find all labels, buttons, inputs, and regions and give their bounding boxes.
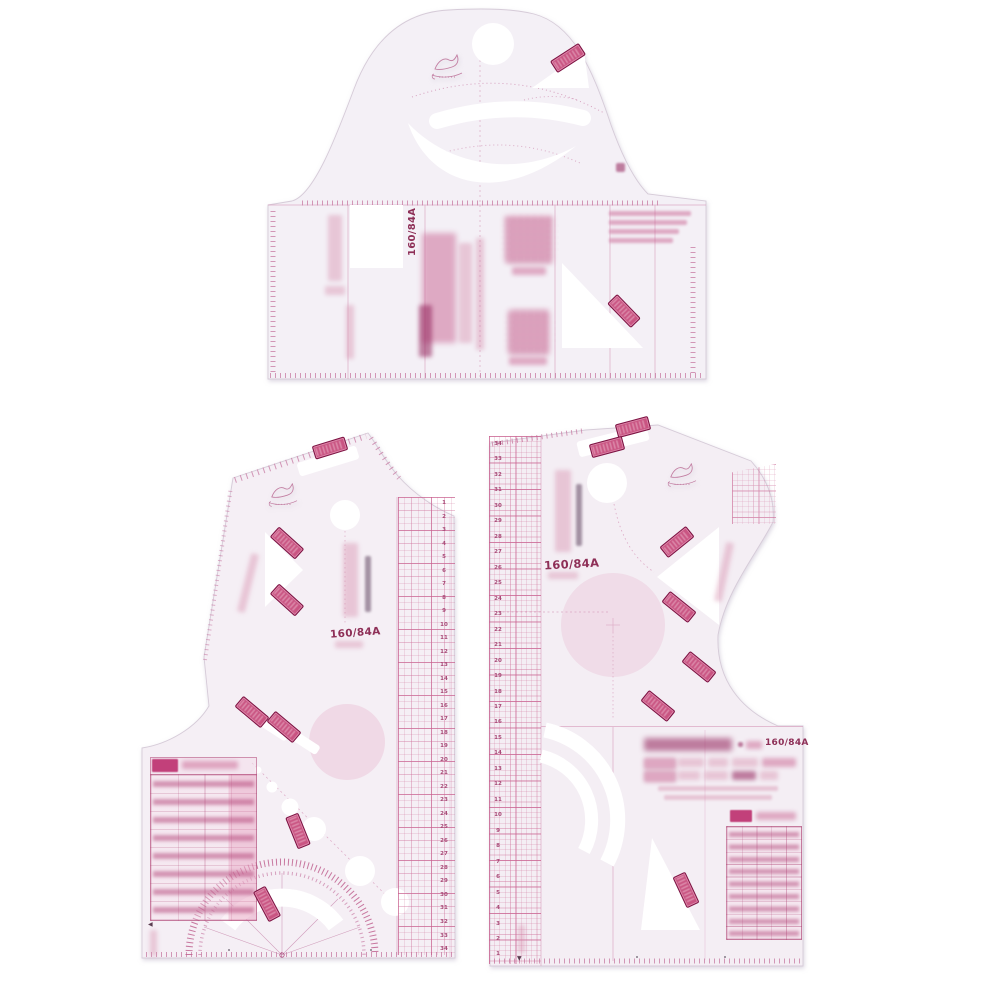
rect-cutout	[350, 205, 403, 268]
ruler-number: 1	[492, 952, 504, 958]
ruler-number: 20	[492, 659, 504, 665]
ruler-number: 33	[492, 457, 504, 463]
ruler-number: 18	[492, 690, 504, 696]
blurred-corner-label	[518, 925, 525, 953]
ruler-number: 13	[437, 663, 451, 669]
ruler-number: 30	[492, 504, 504, 510]
blurred-text	[459, 243, 472, 343]
ruler-number: 8	[437, 596, 451, 602]
blurred-caption	[335, 641, 363, 648]
ruler-number: 22	[437, 785, 451, 791]
ruler-number: 2	[437, 515, 451, 521]
ruler-number: 26	[437, 839, 451, 845]
ruler-number: 3	[437, 528, 451, 534]
ruler-body	[268, 9, 706, 379]
button-hole	[267, 782, 278, 793]
registration-dot	[636, 956, 638, 958]
ruler-number: 10	[492, 813, 504, 819]
ruler-number: 25	[492, 581, 504, 587]
template-yoke-ruler: 160/84A	[262, 5, 708, 383]
size-label-vertical: 160/84A	[407, 210, 418, 256]
ruler-number: 23	[492, 612, 504, 618]
ruler-number: 16	[492, 720, 504, 726]
brand-logo-swan	[427, 53, 467, 83]
ruler-number: 4	[492, 906, 504, 912]
ruler-number: 21	[437, 771, 451, 777]
ruler-number: 30	[437, 893, 451, 899]
blurred-text	[555, 470, 571, 552]
ruler-number: 18	[437, 731, 451, 737]
ruler-number: 27	[492, 550, 504, 556]
blurred-text-dark	[576, 484, 582, 546]
model-value: 160/84A	[765, 738, 809, 748]
hanging-hole	[330, 500, 360, 530]
ruler-number: 32	[437, 920, 451, 926]
ruler-number-column: 1234567891011121314151617181920212223242…	[437, 501, 451, 953]
brand-logo-swan	[662, 462, 702, 490]
ruler-number: 16	[437, 704, 451, 710]
size-chart-table	[726, 826, 802, 940]
qr-code-blurred	[505, 215, 553, 263]
hanging-hole	[587, 463, 627, 503]
ruler-number: 15	[492, 736, 504, 742]
small-pink-mark	[616, 163, 625, 172]
ruler-number: 10	[437, 623, 451, 629]
ruler-number: 7	[437, 582, 451, 588]
ruler-number: 34	[492, 442, 504, 448]
ruler-number: 2	[492, 937, 504, 943]
blurred-note-block	[609, 211, 697, 243]
ruler-number: 13	[492, 767, 504, 773]
blurred-text	[419, 305, 432, 357]
ruler-number: 14	[437, 677, 451, 683]
blurred-chart-title	[182, 761, 238, 769]
chart-title-box	[152, 759, 178, 772]
blurred-model-caption	[746, 741, 762, 749]
blurred-caption	[509, 357, 547, 365]
ruler-number: 12	[492, 782, 504, 788]
size-label: 160/84A	[544, 556, 600, 573]
ruler-number-column: 3433323130292827262524232221201918171615…	[492, 442, 504, 958]
brand-logo-swan	[264, 482, 302, 510]
template-back-bodice-ruler: 3433323130292827262524232221201918171615…	[486, 420, 808, 986]
registration-dot	[724, 956, 726, 958]
blurred-caption	[548, 572, 578, 579]
ruler-number: 24	[492, 597, 504, 603]
hanging-hole	[472, 23, 514, 65]
corner-arrow: ▼	[517, 956, 522, 962]
ruler-number: 32	[492, 473, 504, 479]
registration-dot	[370, 949, 372, 951]
ruler-number: 11	[492, 798, 504, 804]
corner-arrow: ◀	[148, 922, 153, 928]
button-hole	[345, 856, 375, 886]
ruler-number: 26	[492, 566, 504, 572]
ruler-number: 31	[492, 488, 504, 494]
product-photo: { "colors": { "background": "#ffffff", "…	[0, 0, 1000, 1000]
ruler-number: 7	[492, 860, 504, 866]
blurred-vertical-label	[346, 305, 354, 359]
info-block: 160/84A	[644, 736, 802, 810]
ruler-number: 3	[492, 922, 504, 928]
shoulder-grid-patch	[732, 464, 776, 524]
ruler-number: 24	[437, 812, 451, 818]
ruler-number: 5	[437, 555, 451, 561]
ruler-number: 34	[437, 947, 451, 953]
blurred-brand-name	[644, 738, 732, 751]
ruler-number: 23	[437, 798, 451, 804]
blurred-text	[325, 286, 345, 295]
yoke-ruler-shape	[262, 5, 708, 383]
registration-dot	[228, 949, 230, 951]
ruler-number: 27	[437, 852, 451, 858]
ruler-number: 31	[437, 906, 451, 912]
template-front-bodice-ruler: 1234567891011121314151617181920212223242…	[138, 425, 462, 962]
ruler-number: 11	[437, 636, 451, 642]
ruler-number: 19	[437, 744, 451, 750]
blurred-text	[343, 543, 358, 617]
ruler-number: 25	[437, 825, 451, 831]
ruler-number: 21	[492, 643, 504, 649]
ruler-number: 29	[492, 519, 504, 525]
blurred-text	[476, 238, 484, 350]
ruler-number: 5	[492, 891, 504, 897]
ruler-number: 6	[492, 875, 504, 881]
ruler-number: 20	[437, 758, 451, 764]
blurred-chart-title	[756, 812, 796, 820]
qr-code-blurred	[508, 310, 550, 354]
blurred-caption	[512, 267, 546, 275]
ruler-number: 4	[437, 542, 451, 548]
chart-title-box	[730, 810, 752, 822]
ruler-number: 28	[437, 866, 451, 872]
ruler-number: 15	[437, 690, 451, 696]
size-chart-table	[150, 774, 257, 921]
blurred-text	[328, 215, 342, 281]
ruler-number: 17	[437, 717, 451, 723]
ruler-number: 22	[492, 628, 504, 634]
ruler-number: 29	[437, 879, 451, 885]
ruler-number: 28	[492, 535, 504, 541]
blurred-mark	[738, 742, 743, 747]
ruler-number: 6	[437, 569, 451, 575]
ruler-number: 9	[437, 609, 451, 615]
guide-circle-faint	[309, 704, 385, 780]
ruler-number: 9	[492, 829, 504, 835]
ruler-number: 12	[437, 650, 451, 656]
blurred-text-dark	[365, 556, 371, 612]
ruler-number: 17	[492, 705, 504, 711]
ruler-number: 19	[492, 674, 504, 680]
ruler-number: 33	[437, 934, 451, 940]
ruler-number: 14	[492, 751, 504, 757]
ruler-number: 8	[492, 844, 504, 850]
blurred-corner-label	[150, 930, 157, 956]
ruler-number: 1	[437, 501, 451, 507]
